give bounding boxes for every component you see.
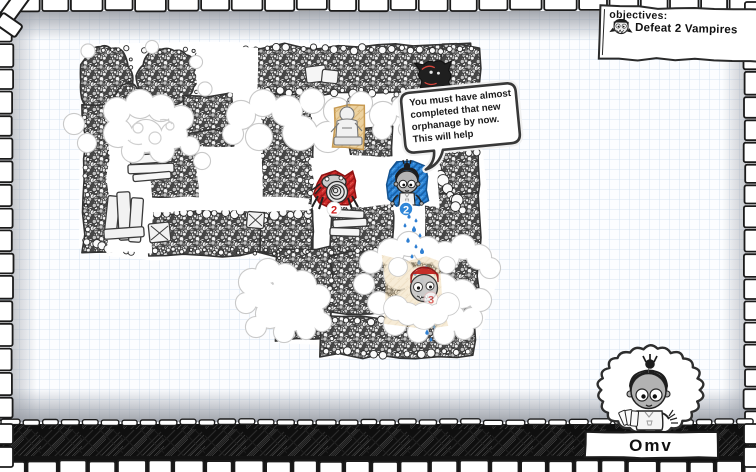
svg-text:Omv: Omv	[629, 436, 673, 455]
svg-text:Defeat 2 Vampires: Defeat 2 Vampires	[635, 22, 738, 37]
svg-text:2: 2	[331, 205, 337, 217]
svg-text:2: 2	[403, 205, 409, 217]
